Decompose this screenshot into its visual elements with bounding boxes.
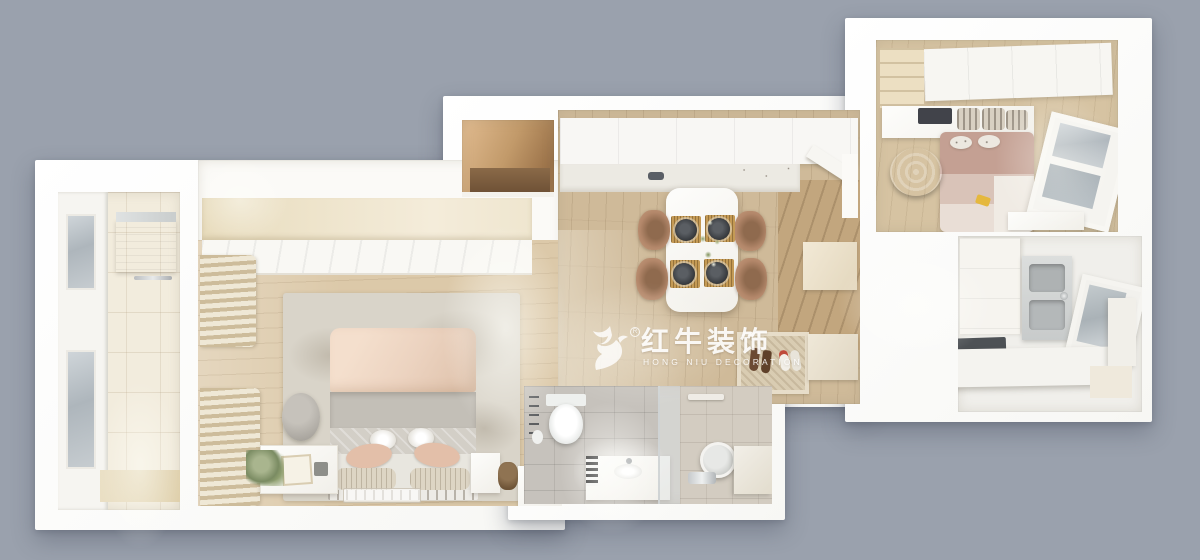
counter-faucet	[648, 172, 664, 180]
curtain-upper	[200, 255, 256, 347]
gray-pouf-chair	[282, 393, 320, 441]
sink-bowl-top	[1029, 264, 1065, 292]
sink-faucet	[1060, 292, 1068, 300]
kitchen-bench-right	[1108, 298, 1136, 366]
toilet-brush	[532, 430, 543, 444]
bed-duvet	[330, 328, 476, 392]
dining-chair-bottom-right	[735, 258, 767, 300]
towel-bar	[688, 394, 724, 400]
second-bedroom	[876, 40, 1118, 232]
entry-door-frame	[842, 154, 858, 218]
striped-towel	[586, 456, 598, 486]
striped-pillow-right	[410, 468, 470, 490]
bathroom-bench	[734, 446, 772, 494]
bedroom2-side-table	[1008, 212, 1084, 230]
window2-pane-bottom	[1042, 164, 1101, 210]
vanity-sink	[614, 464, 642, 479]
curtain-lower	[200, 388, 260, 506]
potted-plant	[246, 450, 284, 486]
table-flowers	[692, 210, 728, 274]
wood-sideboard	[733, 158, 807, 188]
kitchen-step	[1090, 366, 1132, 398]
bed2-pillow-right	[978, 135, 1000, 148]
toilet-bowl	[549, 404, 583, 444]
chrome-rail	[134, 276, 172, 280]
bathroom	[524, 386, 772, 504]
dresser-frames	[281, 454, 313, 486]
laptop	[918, 108, 952, 124]
closet-sill	[462, 192, 554, 197]
kitchen-sink-unit	[1022, 256, 1072, 340]
striped-pillow-left	[336, 468, 396, 490]
wardrobe	[202, 198, 532, 240]
bed2-yellow-accent	[975, 194, 991, 207]
kitchen-tall-cabinets	[960, 238, 1020, 334]
double-bed	[328, 324, 478, 500]
washer-glass-top	[116, 212, 176, 222]
glass-partition	[658, 386, 682, 504]
closet-wood-back	[470, 168, 550, 192]
dining-chair-top-right	[734, 211, 766, 251]
shower-fixtures	[688, 472, 716, 484]
floor-plan-render: R 红牛装饰 HONG NIU DECORATION	[0, 0, 1200, 560]
watermark-title: 红牛装饰	[641, 320, 773, 360]
closet-niche	[462, 120, 554, 197]
toilet	[546, 394, 586, 444]
bed2-pillow-left	[950, 136, 972, 149]
registered-mark-icon: R	[630, 327, 640, 337]
dining-chair-bottom-left	[636, 258, 668, 300]
nightstand-right	[471, 453, 500, 493]
dresser-handle	[314, 462, 328, 476]
bedroom2-closet-niche	[880, 48, 924, 108]
floor-tray-books	[343, 488, 421, 503]
balcony-window-pane-bottom	[66, 350, 96, 469]
window2-pane-top	[1052, 123, 1111, 169]
storage-basket-2	[982, 108, 1005, 130]
washing-machine	[116, 220, 176, 272]
sink-bowl-bottom	[1029, 300, 1065, 330]
hallway-cabinet-upper	[803, 242, 857, 290]
dining-chair-top-left	[638, 210, 670, 250]
papasan-chair	[890, 148, 942, 196]
watermark-subtitle: HONG NIU DECORATION	[643, 357, 803, 367]
bedroom2-wardrobe	[923, 43, 1113, 102]
balcony	[58, 192, 180, 510]
kitchen	[958, 236, 1142, 412]
dried-plant-basket	[498, 462, 518, 490]
storage-basket-1	[957, 108, 980, 130]
storage-basket-3	[1006, 110, 1028, 130]
master-bedroom	[198, 160, 562, 506]
bed-blanket-gray	[330, 392, 476, 428]
bull-logo-icon	[585, 324, 633, 372]
vanity-faucet	[626, 458, 632, 464]
watermark: R 红牛装饰 HONG NIU DECORATION	[585, 320, 825, 380]
balcony-window-pane-top	[66, 214, 96, 290]
balcony-wood-sill	[100, 470, 180, 502]
